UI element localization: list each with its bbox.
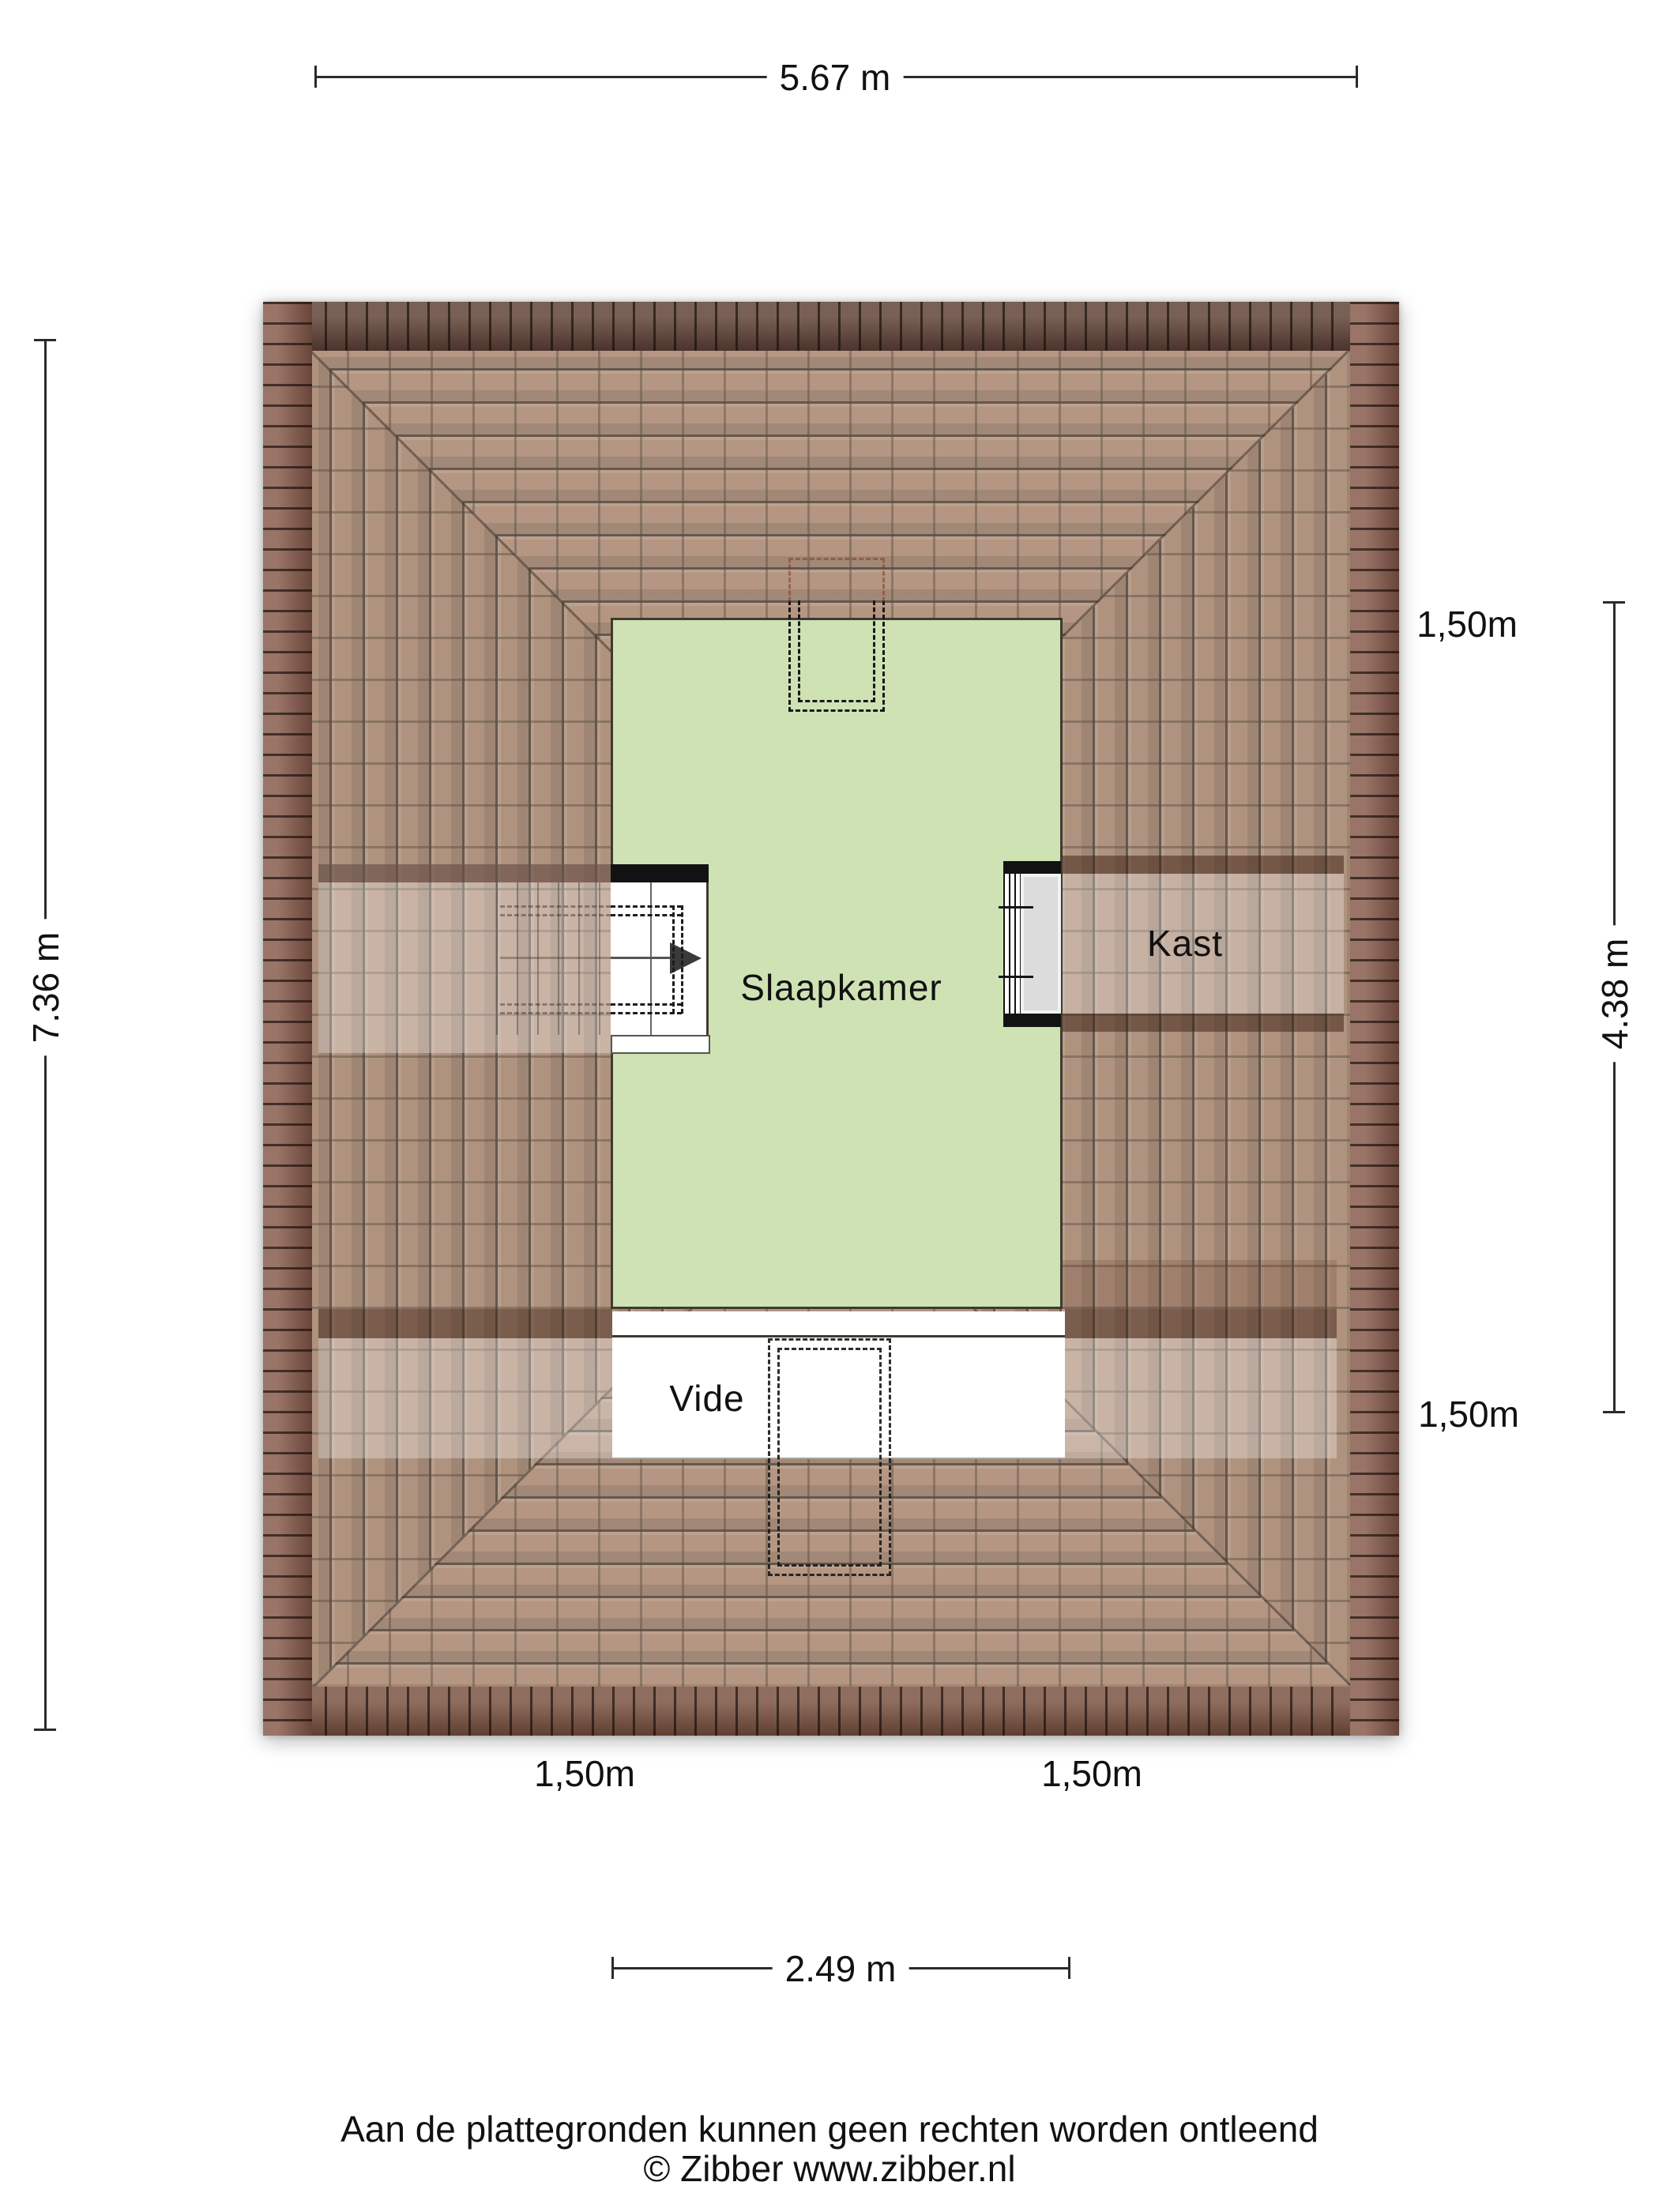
room-label-slaapkamer: Slaapkamer (740, 966, 942, 1009)
dimension-label-bottom: 2.49 m (773, 1944, 909, 1993)
window-sill (1021, 874, 1061, 1014)
stair-walkline (681, 905, 683, 1014)
stair-walkline-faint (500, 1003, 611, 1006)
roof-ridge-band-right (1350, 302, 1399, 1736)
window-tick (999, 976, 1033, 978)
dimension-tick (1356, 66, 1358, 88)
footer-disclaimer: Aan de plattegronden kunnen geen rechten… (340, 2108, 1319, 2150)
window-wall-bottom (1003, 1014, 1061, 1027)
dimension-tick (314, 66, 317, 88)
stair-landing (611, 1035, 710, 1054)
roof-ridge-band-top (263, 302, 1399, 351)
stair-walkline-faint (500, 914, 611, 916)
dimension-tick (34, 339, 56, 341)
stair-wall-top (611, 864, 709, 882)
dimension-tick (1068, 1957, 1070, 1979)
roof-ridge-band-bottom (263, 1687, 1399, 1736)
stair-walkline (611, 1003, 682, 1006)
underroof-vide-wall-right (1065, 1309, 1337, 1338)
underroof-vide-right (1065, 1338, 1337, 1458)
underroof-kast-wall-top (1063, 856, 1344, 874)
dimension-tick (611, 1957, 614, 1979)
dormer-outline-bottom-inner (777, 1348, 882, 1567)
stair-walkline (672, 905, 675, 1014)
window-wall-top (1003, 861, 1061, 874)
clearance-label-right-bottom: 1,50m (1418, 1393, 1519, 1435)
room-label-kast: Kast (1147, 922, 1223, 965)
stair-walkline (611, 1012, 682, 1014)
underroof-vide-left (318, 1338, 612, 1458)
dimension-tick (34, 1729, 56, 1731)
dimension-tick (1603, 1411, 1625, 1413)
stair-tread-line (496, 882, 498, 1035)
footer-credit: © Zibber www.zibber.nl (643, 2147, 1015, 2190)
dormer-outline-top-roof (788, 558, 885, 602)
room-label-vide: Vide (669, 1377, 744, 1420)
dimension-tick (1603, 601, 1625, 604)
dimension-label-right: 4.38 m (1590, 926, 1639, 1063)
stair-walkline-faint (500, 1012, 611, 1014)
dimension-label-left: 7.36 m (21, 920, 70, 1056)
dormer-outline-top-inner (798, 600, 875, 702)
stair-walkline-faint (500, 905, 611, 908)
window-tick (999, 906, 1033, 908)
underroof-kast-wall-bottom (1063, 1014, 1344, 1032)
vide-wall-line (612, 1335, 1065, 1337)
underroof-kast-floor-shadow (1063, 1260, 1337, 1309)
dimension-label-top: 5.67 m (767, 53, 904, 102)
clearance-label-bottom-left: 1,50m (534, 1752, 635, 1795)
underroof-vide-wall-left (318, 1309, 612, 1338)
stair-direction-arrow-icon (670, 942, 702, 974)
stair-mid-line (611, 957, 671, 959)
window-frame-lines (1003, 874, 1021, 1014)
underroof-stairwell-wall (318, 864, 611, 882)
stair-walkline (611, 905, 682, 908)
roof-ridge-band-left (263, 302, 312, 1736)
stair-mid-line-faint (500, 957, 611, 959)
floorplan-page: Slaapkamer Kast Vide 5.67 m 7.36 m 4.38 … (0, 0, 1659, 2212)
stair-walkline (611, 914, 682, 916)
clearance-label-bottom-right: 1,50m (1041, 1752, 1142, 1795)
clearance-label-right-top: 1,50m (1416, 603, 1518, 645)
